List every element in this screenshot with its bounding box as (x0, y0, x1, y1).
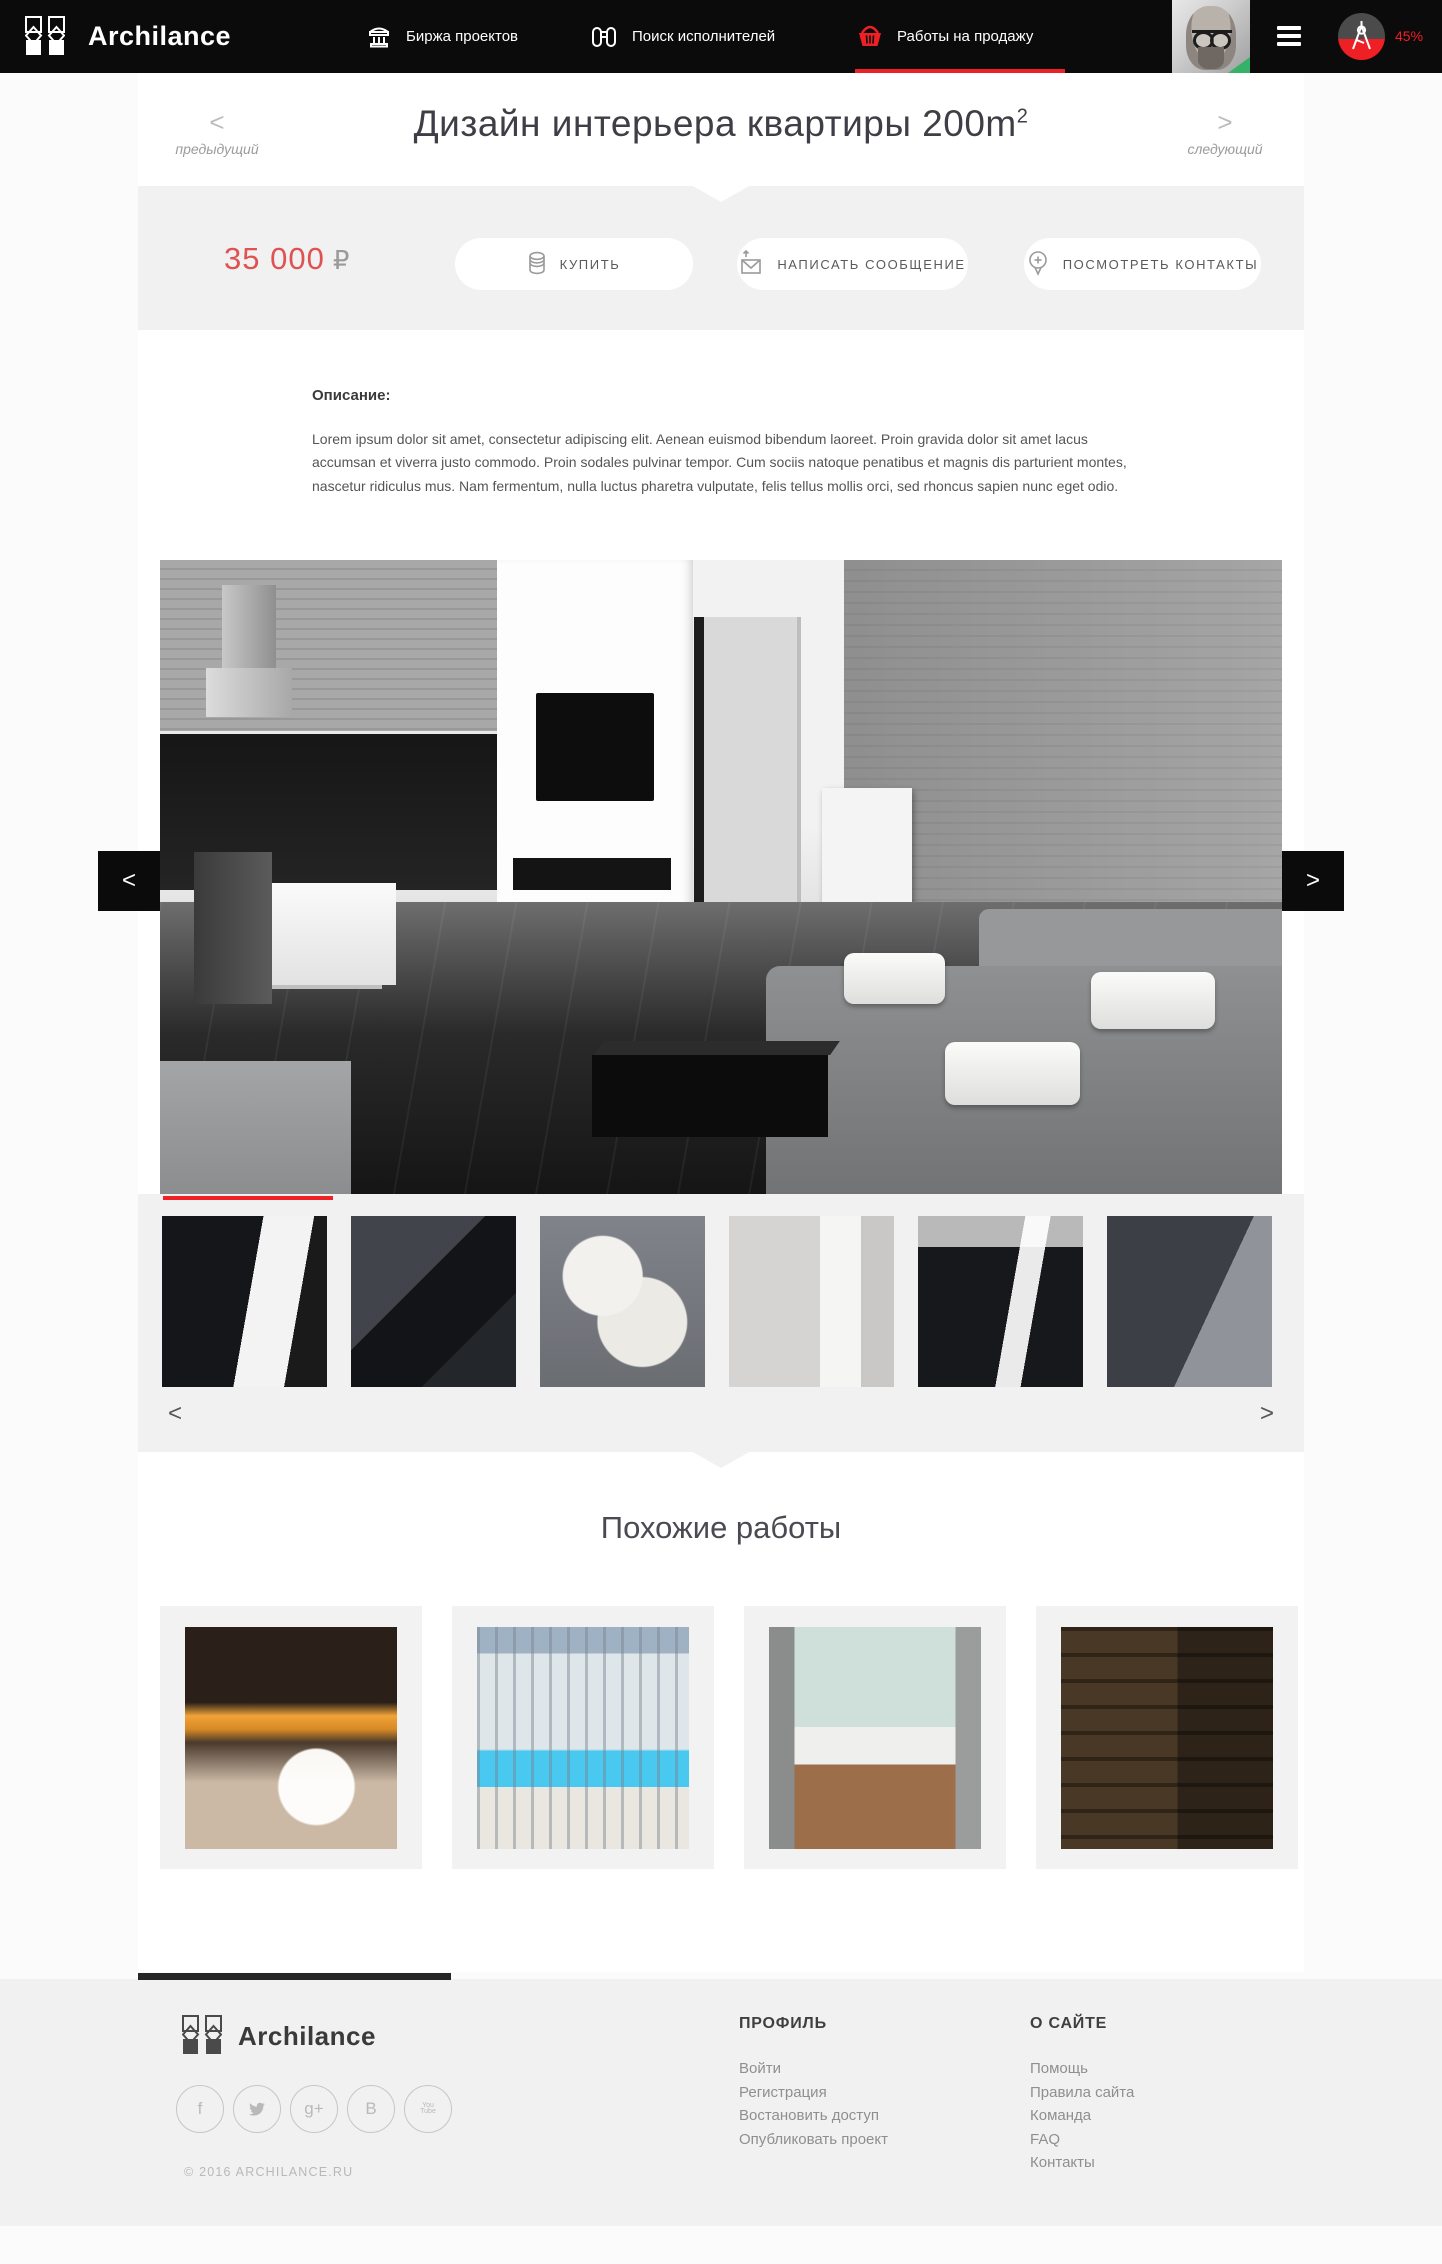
nav-item-label: Поиск исполнителей (632, 28, 775, 45)
footer-brand[interactable]: Archilance (238, 2021, 376, 2052)
photo-pillow (844, 953, 945, 1004)
similar-work-photo (477, 1627, 689, 1849)
photo-doorway (694, 617, 801, 934)
basket-icon (858, 25, 882, 48)
copyright: © 2016 ARCHILANCE.RU (184, 2165, 353, 2179)
footer-column-profile: ПРОФИЛЬ Войти Регистрация Востановить до… (739, 2015, 888, 2151)
pin-plus-icon (1027, 250, 1049, 279)
photo-cooker-hood (222, 585, 276, 667)
photo-media-console (513, 858, 670, 890)
work-card: < предыдущий Дизайн интерьера квартиры 2… (138, 73, 1304, 1972)
similar-work-card-1[interactable] (160, 1606, 422, 1869)
view-contacts-label: ПОСМОТРЕТЬ КОНТАКТЫ (1063, 257, 1259, 272)
thumbnail-5[interactable] (918, 1216, 1083, 1387)
similar-work-card-2[interactable] (452, 1606, 714, 1869)
title-section: < предыдущий Дизайн интерьера квартиры 2… (138, 73, 1304, 186)
view-contacts-button[interactable]: ПОСМОТРЕТЬ КОНТАКТЫ (1024, 238, 1261, 290)
similar-works-section: Похожие работы (138, 1452, 1304, 1972)
footer-logo-icon[interactable] (182, 2015, 222, 2055)
next-work-button[interactable]: > следующий (1170, 111, 1280, 157)
section-notch (691, 1451, 751, 1468)
footer-link-restore-access[interactable]: Востановить доступ (739, 2104, 888, 2128)
hamburger-menu-icon[interactable] (1277, 26, 1301, 46)
facebook-icon[interactable]: f (176, 2085, 224, 2133)
nav-item-label: Биржа проектов (406, 28, 518, 45)
footer-column-title: ПРОФИЛЬ (739, 2015, 888, 2033)
brand-title[interactable]: Archilance (88, 21, 231, 52)
bank-icon (367, 25, 391, 49)
footer-link-login[interactable]: Войти (739, 2057, 888, 2081)
footer-link-publish-project[interactable]: Опубликовать проект (739, 2128, 888, 2152)
price: 35 000₽ (224, 241, 350, 277)
coins-icon (528, 251, 546, 278)
nav-item-label: Работы на продажу (897, 28, 1033, 45)
send-message-label: НАПИСАТЬ СООБЩЕНИЕ (777, 257, 965, 272)
user-avatar[interactable] (1172, 0, 1250, 73)
active-thumbnail-indicator (163, 1196, 333, 1200)
google-plus-icon[interactable]: g+ (290, 2085, 338, 2133)
gallery-prev-button[interactable]: < (98, 851, 160, 911)
nav-item-projects[interactable]: Биржа проектов (367, 0, 518, 73)
page-title: Дизайн интерьера квартиры 200m2 (138, 103, 1304, 145)
footer-link-team[interactable]: Команда (1030, 2104, 1134, 2128)
similar-work-card-4[interactable] (1036, 1606, 1298, 1869)
similar-work-photo (185, 1627, 397, 1849)
thumbs-prev-button[interactable]: < (168, 1400, 182, 1428)
description-section: Описание: Lorem ipsum dolor sit amet, co… (138, 330, 1304, 1194)
photo-left-sofa (160, 1061, 351, 1194)
twitter-icon[interactable] (233, 2085, 281, 2133)
buy-label: КУПИТЬ (560, 257, 621, 272)
nav-item-search-performers[interactable]: Поиск исполнителей (591, 0, 775, 73)
main-photo[interactable] (160, 560, 1282, 1194)
thumbs-next-button[interactable]: > (1260, 1400, 1274, 1428)
thumbnail-1[interactable] (162, 1216, 327, 1387)
similar-work-photo (1061, 1627, 1273, 1849)
section-notch (691, 185, 751, 202)
main-photo-wrap: < > (160, 560, 1282, 1194)
footer: Archilance f g+ B You Tube © 2016 ARCHIL… (0, 1979, 1442, 2226)
archilance-logo-icon[interactable] (25, 16, 65, 56)
photo-tv (536, 693, 654, 801)
active-nav-underline (855, 69, 1065, 73)
similar-work-card-3[interactable] (744, 1606, 1006, 1869)
similar-work-photo (769, 1627, 981, 1849)
thumbnail-4[interactable] (729, 1216, 894, 1387)
footer-link-contacts[interactable]: Контакты (1030, 2151, 1134, 2175)
online-status-corner (1228, 57, 1250, 73)
vk-icon[interactable]: B (347, 2085, 395, 2133)
footer-column-title: О САЙТЕ (1030, 2015, 1134, 2033)
social-links: f g+ B You Tube (176, 2085, 452, 2133)
currency-ruble: ₽ (333, 245, 351, 275)
next-label: следующий (1170, 141, 1280, 157)
binoculars-icon (591, 25, 617, 49)
footer-link-rules[interactable]: Правила сайта (1030, 2081, 1134, 2105)
profile-progress-icon[interactable] (1338, 13, 1385, 60)
avatar-beard (1198, 47, 1224, 69)
photo-pillow (945, 1042, 1080, 1105)
youtube-icon[interactable]: You Tube (404, 2085, 452, 2133)
thumbnail-3[interactable] (540, 1216, 705, 1387)
thumbnails-strip: < > (138, 1194, 1304, 1452)
description-heading: Описание: (312, 387, 1304, 406)
similar-works-row (160, 1606, 1304, 1869)
photo-pillow (1091, 972, 1214, 1029)
send-message-button[interactable]: НАПИСАТЬ СООБЩЕНИЕ (737, 238, 968, 290)
footer-accent-bar (138, 1973, 451, 1980)
top-nav: Archilance Биржа проектов Поиск исполнит… (0, 0, 1442, 73)
thumbnail-6[interactable] (1107, 1216, 1272, 1387)
avatar-glasses (1192, 30, 1232, 44)
thumbnail-row (162, 1216, 1272, 1387)
envelope-up-icon (739, 250, 763, 279)
nav-item-works-for-sale[interactable]: Работы на продажу (858, 0, 1033, 73)
chevron-right-icon: > (1170, 111, 1280, 133)
progress-percent: 45% (1395, 28, 1423, 44)
purchase-bar: 35 000₽ КУПИТЬ НАПИСАТЬ СООБЩЕНИЕ (138, 186, 1304, 330)
photo-coffee-table (592, 1055, 828, 1137)
footer-link-register[interactable]: Регистрация (739, 2081, 888, 2105)
footer-link-faq[interactable]: FAQ (1030, 2128, 1134, 2152)
photo-dark-chair (194, 852, 273, 1004)
description-text: Lorem ipsum dolor sit amet, consectetur … (312, 428, 1140, 498)
gallery-next-button[interactable]: > (1282, 851, 1344, 911)
footer-link-help[interactable]: Помощь (1030, 2057, 1134, 2081)
thumbnail-2[interactable] (351, 1216, 516, 1387)
buy-button[interactable]: КУПИТЬ (455, 238, 693, 290)
footer-column-about: О САЙТЕ Помощь Правила сайта Команда FAQ… (1030, 2015, 1134, 2175)
